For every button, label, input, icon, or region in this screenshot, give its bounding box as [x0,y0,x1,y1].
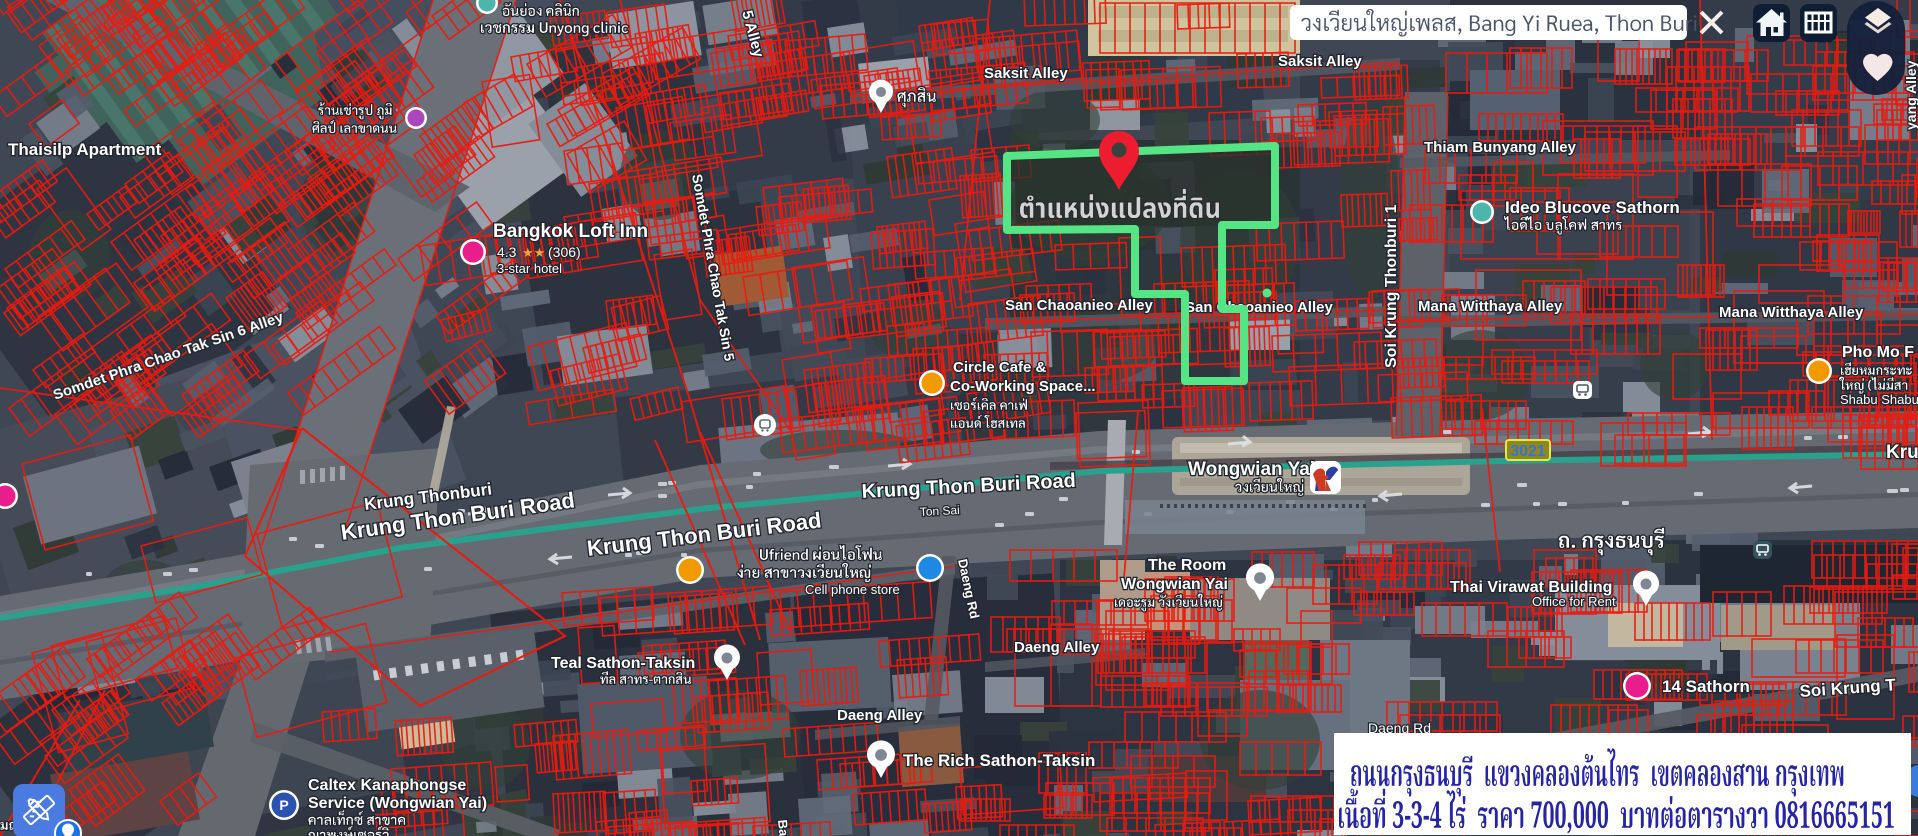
svg-text:yang Alley: yang Alley [1903,60,1918,130]
